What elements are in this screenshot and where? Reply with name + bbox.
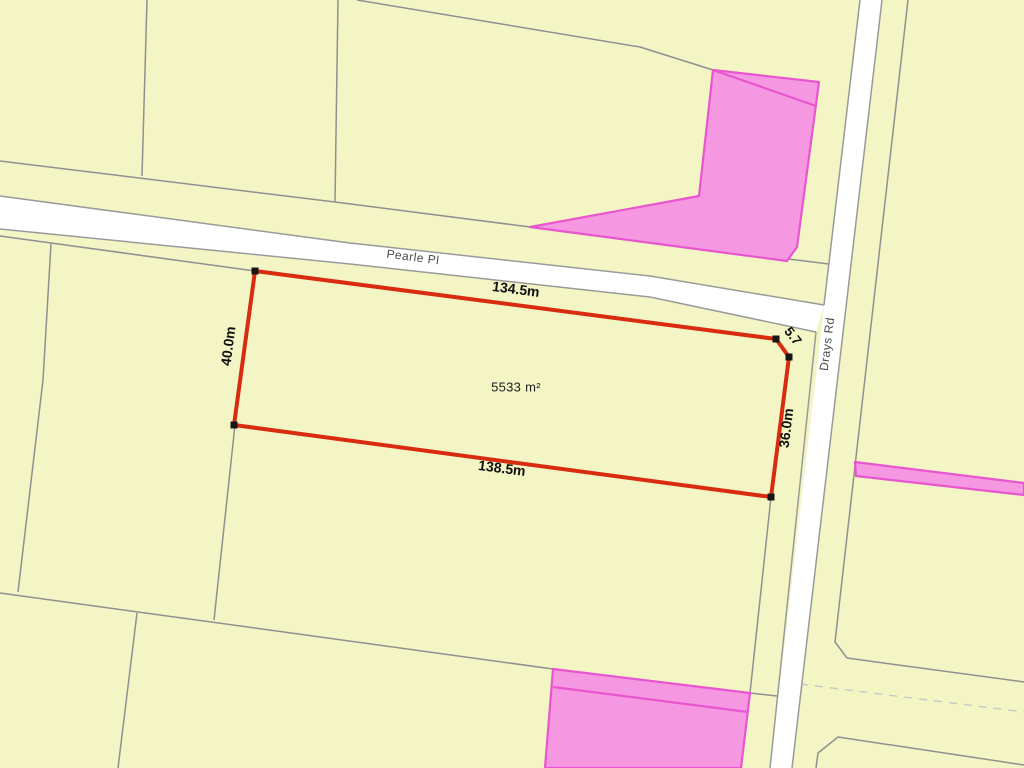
cadastral-map[interactable]: Pearle PlDrays Rd134.5m138.5m40.0m36.0m5…: [0, 0, 1024, 768]
vertex-marker: [768, 494, 775, 501]
area-label: 5533 m²: [491, 380, 541, 395]
cadastral-map-viewport[interactable]: Pearle PlDrays Rd134.5m138.5m40.0m36.0m5…: [0, 0, 1024, 768]
vertex-marker: [252, 268, 259, 275]
vertex-marker: [773, 336, 780, 343]
vertex-marker: [231, 422, 238, 429]
vertex-marker: [786, 354, 793, 361]
